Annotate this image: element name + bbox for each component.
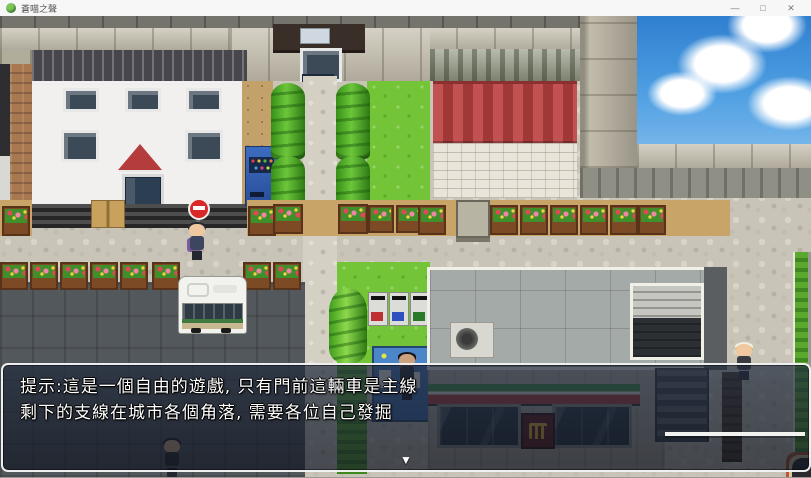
white-road-line	[665, 432, 805, 436]
lower-wall-band	[580, 168, 811, 198]
cypress-tree	[271, 83, 305, 161]
cloud	[747, 76, 811, 131]
red-door-awning	[118, 144, 162, 170]
building-base-fence	[32, 204, 247, 228]
stone-wall-column	[580, 16, 637, 168]
flower-planter	[2, 206, 30, 236]
bus-windshield	[182, 303, 243, 320]
app-icon	[6, 3, 16, 13]
close-button[interactable]: ✕	[777, 0, 805, 16]
flower-planter	[248, 206, 276, 236]
flower-planter	[610, 205, 638, 235]
entrance-sign	[300, 28, 330, 44]
flower-planter	[120, 262, 148, 290]
no-entry-sign	[188, 198, 210, 220]
flower-planter	[243, 262, 271, 290]
shop-cornice	[430, 49, 580, 81]
light-wall-strip	[0, 156, 10, 204]
flower-planter	[152, 262, 180, 290]
dialog-text-line1: 提示:這是一個自由的遊戲, 只有門前這輛車是主線	[20, 372, 418, 397]
window-title: 蒼喵之聲	[21, 2, 57, 15]
app-window: 蒼喵之聲 — □ ✕	[0, 0, 811, 478]
continue-indicator: ▼	[400, 453, 412, 467]
bus-roof-panel	[187, 283, 209, 297]
rooftop-shadow-edge	[704, 267, 727, 370]
dialog-text-line2: 剩下的支線在城市各個角落, 需要各位自己發掘	[20, 398, 393, 423]
conifer-tree	[329, 288, 367, 364]
stone-plaque	[456, 200, 490, 238]
shop-brick-wall	[433, 143, 577, 198]
minimize-button[interactable]: —	[721, 0, 749, 16]
flower-planter	[520, 205, 548, 235]
bus-wheel	[191, 328, 201, 333]
building-window	[125, 88, 161, 112]
building-window	[185, 130, 223, 162]
ac-unit	[450, 322, 494, 358]
sky	[637, 16, 811, 144]
flower-planter	[0, 262, 28, 290]
flower-planter	[550, 205, 578, 235]
recycle-bin-blue	[389, 292, 409, 326]
dialog-box[interactable]: 提示:這是一個自由的遊戲, 只有門前這輛車是主線 剩下的支線在城市各個角落, 需…	[1, 363, 811, 472]
building-window	[186, 88, 222, 112]
cardboard-box	[91, 200, 125, 228]
flower-planter	[60, 262, 88, 290]
recycle-bin-red	[368, 292, 388, 326]
brown-brick-wall	[10, 64, 32, 204]
flower-planter	[273, 262, 301, 290]
tree-planter	[273, 204, 303, 234]
flower-planter	[90, 262, 118, 290]
window-controls: — □ ✕	[721, 0, 805, 16]
red-awning	[433, 81, 577, 146]
vending-slot	[250, 192, 264, 197]
maximize-button[interactable]: □	[749, 0, 777, 16]
recycle-bins	[368, 292, 430, 326]
bus	[178, 276, 247, 334]
title-bar[interactable]: 蒼喵之聲 — □ ✕	[0, 0, 811, 16]
flower-planter	[418, 205, 446, 235]
game-viewport[interactable]: 提示:這是一個自由的遊戲, 只有門前這輛車是主線 剩下的支線在城市各個角落, 需…	[0, 16, 811, 477]
parapet-wall	[637, 144, 811, 168]
flower-planter	[490, 205, 518, 235]
cypress-tree	[336, 83, 370, 161]
tree-planter	[338, 204, 368, 234]
flower-planter	[30, 262, 58, 290]
building-window	[61, 130, 99, 162]
flower-planter	[580, 205, 608, 235]
building-roof-band	[32, 50, 247, 81]
cloud	[647, 71, 717, 116]
dark-wall-strip	[0, 64, 10, 156]
flower-planter	[368, 205, 394, 233]
bus-roof-panel	[213, 285, 237, 293]
rooftop-shutter	[630, 283, 704, 360]
grass-plot	[367, 81, 430, 203]
player-character	[187, 224, 207, 260]
building-window	[63, 88, 99, 112]
bus-wheel	[221, 328, 231, 333]
flower-planter	[638, 205, 666, 235]
